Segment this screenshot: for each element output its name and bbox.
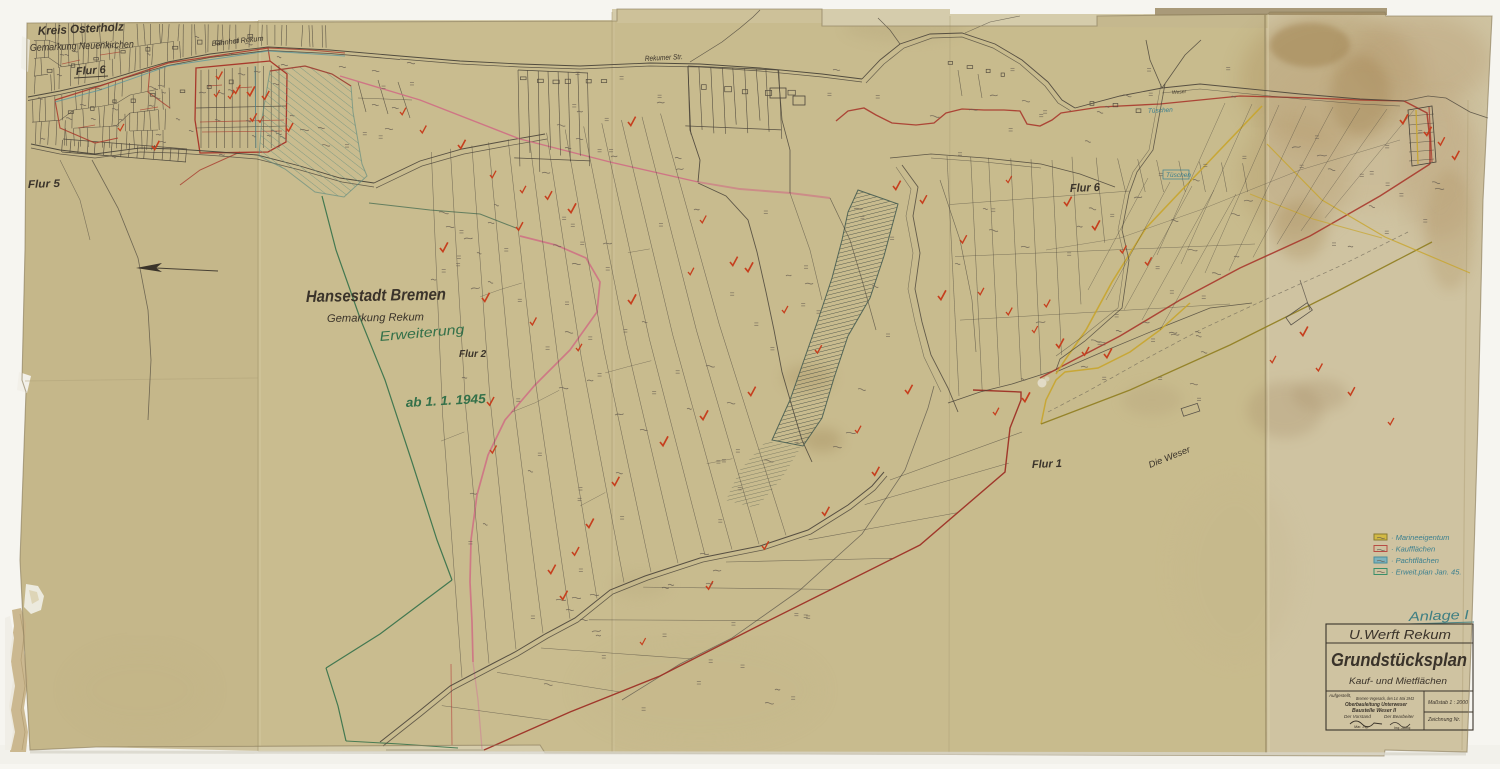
svg-text:Flur 1: Flur 1 — [1032, 458, 1062, 471]
svg-text:· Marineeigentum: · Marineeigentum — [1391, 533, 1449, 542]
svg-text:Hansestadt Bremen: Hansestadt Bremen — [306, 286, 446, 306]
svg-text:Bremen-Vegesack, den 14. Mai 1: Bremen-Vegesack, den 14. Mai 1943 — [1356, 696, 1415, 701]
svg-text:Gemarkung Rekum: Gemarkung Rekum — [327, 311, 424, 325]
svg-text:Maßstab 1 : 2000: Maßstab 1 : 2000 — [1428, 700, 1468, 706]
svg-text:Weser: Weser — [1172, 89, 1187, 96]
svg-text:Mar. Ing.: Mar. Ing. — [1354, 725, 1369, 729]
svg-text:Der Bearbeiter: Der Bearbeiter — [1384, 714, 1414, 719]
svg-text:Flur 5: Flur 5 — [28, 178, 61, 191]
svg-text:Aufgestellt,: Aufgestellt, — [1328, 693, 1351, 698]
svg-text:Anlage I: Anlage I — [1407, 607, 1469, 624]
svg-text:Der Vorstand: Der Vorstand — [1344, 714, 1371, 719]
svg-text:Tüschen: Tüschen — [1166, 172, 1191, 179]
svg-text:Zeichnung Nr.: Zeichnung Nr. — [1427, 717, 1460, 723]
svg-text:Kauf- und Mietflächen: Kauf- und Mietflächen — [1349, 676, 1447, 687]
svg-text:· Pachtflächen: · Pachtflächen — [1391, 556, 1439, 565]
svg-text:Tüschen: Tüschen — [1148, 107, 1174, 115]
svg-text:Grundstücksplan: Grundstücksplan — [1331, 650, 1467, 670]
svg-text:Flur 6: Flur 6 — [75, 64, 107, 78]
svg-text:· Kaufflächen: · Kaufflächen — [1391, 545, 1435, 554]
svg-text:Flur 6: Flur 6 — [1070, 182, 1101, 195]
svg-text:Ing.-Abtlg.: Ing.-Abtlg. — [1394, 726, 1411, 730]
svg-text:U.Werft Rekum: U.Werft Rekum — [1349, 628, 1451, 642]
svg-text:· Erweit.plan Jan. 45.: · Erweit.plan Jan. 45. — [1391, 568, 1461, 577]
svg-text:Flur 2: Flur 2 — [459, 349, 487, 360]
